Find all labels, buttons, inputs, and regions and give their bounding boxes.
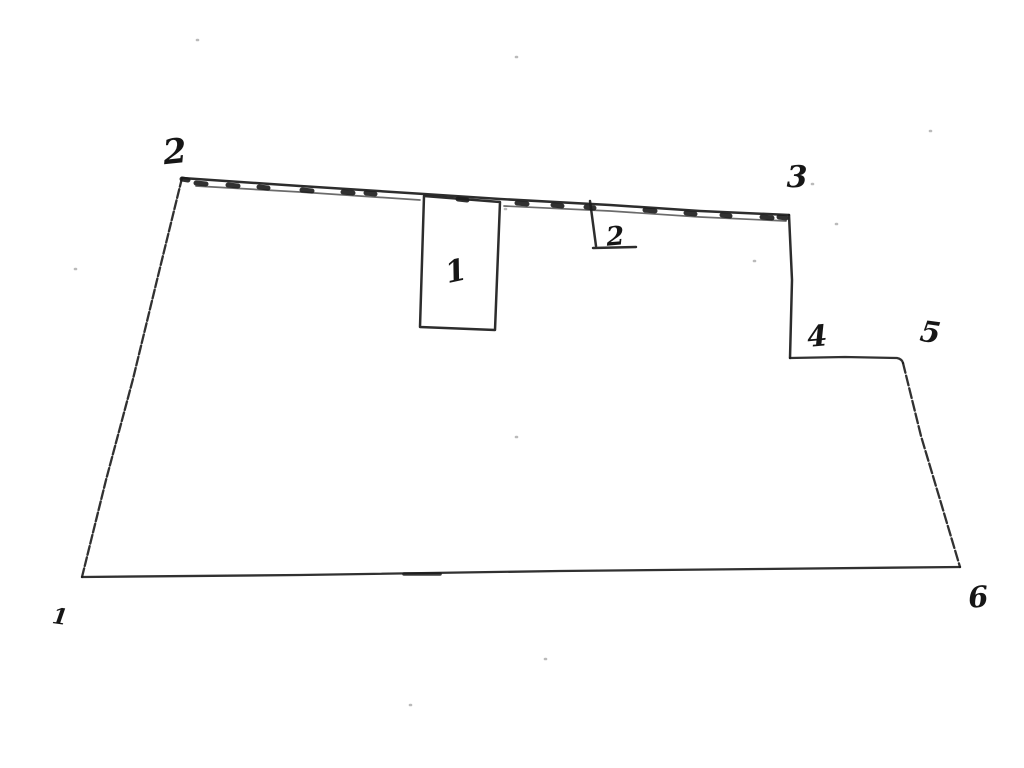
boundary-step-horizontal-edge bbox=[790, 357, 903, 363]
boundary-step-vertical-edge bbox=[789, 215, 792, 358]
boundary-right-slant-edge bbox=[903, 363, 960, 567]
vertex-label-4: 4 bbox=[806, 318, 829, 354]
annex-2-label: 2 bbox=[604, 221, 626, 253]
scanned-sketch-page: 1 2 3 4 5 6 1 2 bbox=[0, 0, 1024, 768]
boundary-left-edge bbox=[82, 178, 182, 577]
vertex-label-6: 6 bbox=[967, 579, 990, 615]
boundary-top-edge-outer-line bbox=[182, 178, 789, 215]
vertex-label-5: 5 bbox=[918, 314, 943, 350]
boundary-top-edge-inner-line bbox=[196, 186, 786, 221]
vertex-label-2: 2 bbox=[160, 131, 189, 173]
scan-noise-specks bbox=[75, 40, 931, 705]
vertex-label-1: 1 bbox=[51, 603, 70, 631]
plot-boundary-sketch: 1 2 3 4 5 6 1 2 bbox=[0, 0, 1024, 768]
boundary-bottom-edge bbox=[82, 567, 960, 577]
building-1-label: 1 bbox=[442, 252, 470, 291]
vertex-label-3: 3 bbox=[787, 160, 808, 195]
